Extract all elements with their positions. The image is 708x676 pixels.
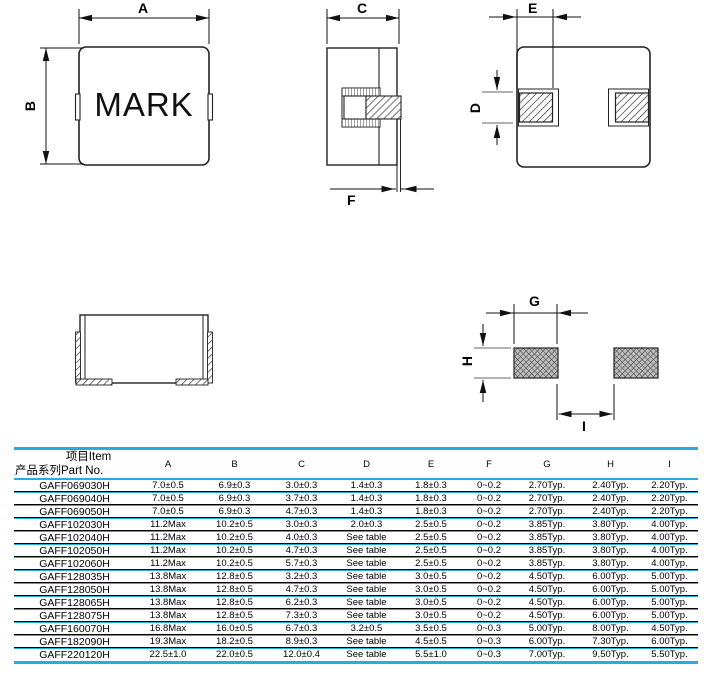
dim-value-cell: 2.5±0.5: [398, 519, 464, 532]
dim-value-cell: 3.85Typ.: [514, 519, 580, 532]
dim-value-cell: 16.0±0.5: [201, 623, 268, 636]
table-row: GAFF069040H7.0±0.56.9±0.33.7±0.31.4±0.31…: [14, 493, 698, 506]
dim-value-cell: 5.50Typ.: [641, 649, 698, 664]
dim-value-cell: 11.2Max: [135, 532, 201, 545]
table-row: GAFF182090H19.3Max18.2±0.58.9±0.3See tab…: [14, 636, 698, 649]
dim-value-cell: 3.0±0.5: [398, 597, 464, 610]
dim-label-c: C: [357, 1, 367, 15]
dim-value-cell: 12.8±0.5: [201, 597, 268, 610]
dim-value-cell: 4.50Typ.: [641, 623, 698, 636]
dim-value-cell: 3.80Typ.: [580, 519, 641, 532]
dim-value-cell: 4.50Typ.: [514, 571, 580, 584]
dim-value-cell: 22.5±1.0: [135, 649, 201, 664]
dim-value-cell: 0~0.2: [464, 571, 514, 584]
dim-value-cell: 4.00Typ.: [641, 519, 698, 532]
dim-value-cell: 2.70Typ.: [514, 506, 580, 519]
column-header-g: G: [514, 450, 580, 480]
dim-value-cell: 6.00Typ.: [641, 636, 698, 649]
part-no-cell: GAFF102050H: [14, 545, 135, 558]
column-header-a: A: [135, 450, 201, 480]
dim-value-cell: 6.00Typ.: [514, 636, 580, 649]
table-row: GAFF069030H7.0±0.56.9±0.33.0±0.31.4±0.31…: [14, 480, 698, 493]
table-row: GAFF102050H11.2Max10.2±0.54.7±0.3See tab…: [14, 545, 698, 558]
part-no-cell: GAFF102040H: [14, 532, 135, 545]
dim-value-cell: See table: [335, 610, 398, 623]
dim-value-cell: 4.50Typ.: [514, 597, 580, 610]
dim-label-f: F: [347, 193, 356, 207]
dim-value-cell: 9.50Typ.: [580, 649, 641, 664]
dim-value-cell: 3.7±0.3: [268, 493, 335, 506]
dim-value-cell: 3.80Typ.: [580, 558, 641, 571]
dim-value-cell: 0~0.3: [464, 636, 514, 649]
dim-value-cell: 2.70Typ.: [514, 493, 580, 506]
dim-value-cell: 2.40Typ.: [580, 506, 641, 519]
dim-value-cell: 0~0.2: [464, 597, 514, 610]
dim-value-cell: 6.9±0.3: [201, 493, 268, 506]
table-row: GAFF128035H13.8Max12.8±0.53.2±0.3See tab…: [14, 571, 698, 584]
dim-value-cell: See table: [335, 597, 398, 610]
dim-value-cell: 2.70Typ.: [514, 480, 580, 493]
dim-value-cell: 0~0.2: [464, 545, 514, 558]
part-no-header: 项目Item 产品系列Part No.: [14, 450, 135, 480]
dim-value-cell: 7.00Typ.: [514, 649, 580, 664]
part-no-cell: GAFF102060H: [14, 558, 135, 571]
dim-value-cell: 4.00Typ.: [641, 545, 698, 558]
land-pattern-drawing: [474, 304, 658, 420]
dim-value-cell: 4.7±0.3: [268, 584, 335, 597]
dim-value-cell: 0~0.2: [464, 584, 514, 597]
dim-value-cell: 16.8Max: [135, 623, 201, 636]
dim-value-cell: 2.40Typ.: [580, 480, 641, 493]
front-view-drawing: [76, 315, 213, 385]
dim-value-cell: 1.4±0.3: [335, 506, 398, 519]
dim-value-cell: See table: [335, 636, 398, 649]
column-header-h: H: [580, 450, 641, 480]
column-header-c: C: [268, 450, 335, 480]
dim-value-cell: 0~0.2: [464, 610, 514, 623]
table-row: GAFF069050H7.0±0.56.9±0.34.7±0.31.4±0.31…: [14, 506, 698, 519]
dim-value-cell: 10.2±0.5: [201, 558, 268, 571]
dim-value-cell: 2.20Typ.: [641, 506, 698, 519]
dim-value-cell: 11.2Max: [135, 545, 201, 558]
dim-label-h: H: [460, 356, 474, 366]
dim-value-cell: See table: [335, 545, 398, 558]
column-header-b: B: [201, 450, 268, 480]
dim-value-cell: 5.00Typ.: [641, 610, 698, 623]
dim-value-cell: 3.0±0.3: [268, 519, 335, 532]
dim-value-cell: 4.7±0.3: [268, 545, 335, 558]
part-no-cell: GAFF069030H: [14, 480, 135, 493]
dim-value-cell: 19.3Max: [135, 636, 201, 649]
dim-value-cell: 0~0.2: [464, 493, 514, 506]
dim-value-cell: 0~0.2: [464, 506, 514, 519]
dim-value-cell: 12.8±0.5: [201, 610, 268, 623]
dim-value-cell: 3.2±0.3: [268, 571, 335, 584]
dim-value-cell: 3.0±0.5: [398, 571, 464, 584]
dim-value-cell: 6.2±0.3: [268, 597, 335, 610]
dim-value-cell: 6.9±0.3: [201, 480, 268, 493]
dim-value-cell: 6.9±0.3: [201, 506, 268, 519]
dim-value-cell: 5.00Typ.: [641, 584, 698, 597]
dim-value-cell: See table: [335, 584, 398, 597]
bottom-view-drawing: [482, 9, 650, 167]
part-no-cell: GAFF069040H: [14, 493, 135, 506]
dim-value-cell: 7.3±0.3: [268, 610, 335, 623]
dim-value-cell: 2.0±0.3: [335, 519, 398, 532]
dim-value-cell: 4.00Typ.: [641, 558, 698, 571]
side-view-drawing: [327, 9, 434, 192]
dim-value-cell: 8.00Typ.: [580, 623, 641, 636]
part-no-cell: GAFF102030H: [14, 519, 135, 532]
dim-value-cell: 5.00Typ.: [641, 571, 698, 584]
dim-label-e: E: [528, 1, 537, 15]
dim-value-cell: 13.8Max: [135, 610, 201, 623]
dim-value-cell: 18.2±0.5: [201, 636, 268, 649]
dim-value-cell: 5.5±1.0: [398, 649, 464, 664]
dim-value-cell: 10.2±0.5: [201, 519, 268, 532]
dim-value-cell: 11.2Max: [135, 558, 201, 571]
dim-value-cell: See table: [335, 532, 398, 545]
item-label: 项目Item: [14, 450, 135, 464]
dim-value-cell: 4.50Typ.: [514, 584, 580, 597]
dim-value-cell: 5.00Typ.: [641, 597, 698, 610]
dim-value-cell: 1.8±0.3: [398, 506, 464, 519]
table-row: GAFF160070H16.8Max16.0±0.56.7±0.33.2±0.5…: [14, 623, 698, 636]
dim-value-cell: 6.00Typ.: [580, 610, 641, 623]
dim-value-cell: 0~0.2: [464, 532, 514, 545]
dim-value-cell: 6.00Typ.: [580, 584, 641, 597]
column-header-i: I: [641, 450, 698, 480]
dim-value-cell: 3.85Typ.: [514, 532, 580, 545]
dim-value-cell: 4.00Typ.: [641, 532, 698, 545]
dim-value-cell: 0~0.2: [464, 480, 514, 493]
dim-value-cell: 11.2Max: [135, 519, 201, 532]
part-no-cell: GAFF160070H: [14, 623, 135, 636]
column-header-d: D: [335, 450, 398, 480]
part-no-cell: GAFF069050H: [14, 506, 135, 519]
dim-value-cell: 8.9±0.3: [268, 636, 335, 649]
dim-value-cell: 12.8±0.5: [201, 571, 268, 584]
dim-label-b: B: [23, 101, 37, 111]
dim-value-cell: 4.7±0.3: [268, 506, 335, 519]
table-row: GAFF102030H11.2Max10.2±0.53.0±0.32.0±0.3…: [14, 519, 698, 532]
table-row: GAFF128075H13.8Max12.8±0.57.3±0.3See tab…: [14, 610, 698, 623]
dim-value-cell: See table: [335, 649, 398, 664]
mark-text: MARK: [79, 86, 209, 124]
dim-value-cell: 3.2±0.5: [335, 623, 398, 636]
dim-value-cell: 6.00Typ.: [580, 571, 641, 584]
dim-value-cell: 0~0.3: [464, 649, 514, 664]
dim-value-cell: 7.30Typ.: [580, 636, 641, 649]
table-row: GAFF102060H11.2Max10.2±0.55.7±0.3See tab…: [14, 558, 698, 571]
dim-value-cell: 4.5±0.5: [398, 636, 464, 649]
dimensions-table: 项目Item 产品系列Part No. ABCDEFGHI GAFF069030…: [14, 447, 698, 664]
dim-value-cell: 7.0±0.5: [135, 506, 201, 519]
dim-value-cell: 6.00Typ.: [580, 597, 641, 610]
dim-value-cell: 2.20Typ.: [641, 480, 698, 493]
dim-value-cell: 1.4±0.3: [335, 493, 398, 506]
dim-value-cell: 7.0±0.5: [135, 480, 201, 493]
table-row: GAFF220120H22.5±1.022.0±0.512.0±0.4See t…: [14, 649, 698, 664]
dim-label-i: I: [582, 419, 586, 433]
dim-value-cell: 3.85Typ.: [514, 545, 580, 558]
part-no-cell: GAFF220120H: [14, 649, 135, 664]
dim-label-g: G: [529, 294, 540, 308]
table-row: GAFF102040H11.2Max10.2±0.54.0±0.3See tab…: [14, 532, 698, 545]
dim-value-cell: 3.80Typ.: [580, 532, 641, 545]
part-no-cell: GAFF128050H: [14, 584, 135, 597]
dim-value-cell: 13.8Max: [135, 584, 201, 597]
part-no-cell: GAFF128035H: [14, 571, 135, 584]
part-no-cell: GAFF128065H: [14, 597, 135, 610]
dim-value-cell: 4.0±0.3: [268, 532, 335, 545]
dim-value-cell: 13.8Max: [135, 571, 201, 584]
dim-value-cell: 10.2±0.5: [201, 532, 268, 545]
table-header-row: 项目Item 产品系列Part No. ABCDEFGHI: [14, 450, 698, 480]
dim-value-cell: 13.8Max: [135, 597, 201, 610]
part-no-cell: GAFF128075H: [14, 610, 135, 623]
dim-value-cell: 2.5±0.5: [398, 532, 464, 545]
dim-value-cell: 2.40Typ.: [580, 493, 641, 506]
dim-value-cell: See table: [335, 558, 398, 571]
column-header-e: E: [398, 450, 464, 480]
dim-value-cell: 10.2±0.5: [201, 545, 268, 558]
dim-value-cell: 2.20Typ.: [641, 493, 698, 506]
dim-value-cell: 22.0±0.5: [201, 649, 268, 664]
dim-value-cell: 0~0.2: [464, 558, 514, 571]
dim-value-cell: 3.85Typ.: [514, 558, 580, 571]
dim-value-cell: 1.8±0.3: [398, 480, 464, 493]
dim-value-cell: 1.8±0.3: [398, 493, 464, 506]
dimension-drawings: [0, 0, 708, 445]
dim-value-cell: See table: [335, 571, 398, 584]
dim-label-a: A: [138, 1, 148, 15]
dim-label-d: D: [468, 103, 482, 113]
table-row: GAFF128065H13.8Max12.8±0.56.2±0.3See tab…: [14, 597, 698, 610]
part-no-cell: GAFF182090H: [14, 636, 135, 649]
dim-value-cell: 7.0±0.5: [135, 493, 201, 506]
column-header-f: F: [464, 450, 514, 480]
dim-value-cell: 3.0±0.5: [398, 584, 464, 597]
dim-value-cell: 3.80Typ.: [580, 545, 641, 558]
part-no-label: 产品系列Part No.: [14, 464, 135, 478]
dim-value-cell: 2.5±0.5: [398, 545, 464, 558]
dim-value-cell: 5.7±0.3: [268, 558, 335, 571]
datasheet-page: MARK A B C F E D G H I 项目Item 产品系列Part N…: [0, 0, 708, 676]
dim-value-cell: 12.8±0.5: [201, 584, 268, 597]
dim-value-cell: 6.7±0.3: [268, 623, 335, 636]
dim-value-cell: 0~0.2: [464, 519, 514, 532]
dim-value-cell: 0~0.3: [464, 623, 514, 636]
dim-value-cell: 5.00Typ.: [514, 623, 580, 636]
table-row: GAFF128050H13.8Max12.8±0.54.7±0.3See tab…: [14, 584, 698, 597]
dim-value-cell: 2.5±0.5: [398, 558, 464, 571]
dim-value-cell: 12.0±0.4: [268, 649, 335, 664]
dim-value-cell: 1.4±0.3: [335, 480, 398, 493]
dim-value-cell: 3.5±0.5: [398, 623, 464, 636]
dim-value-cell: 4.50Typ.: [514, 610, 580, 623]
dim-value-cell: 3.0±0.5: [398, 610, 464, 623]
dim-value-cell: 3.0±0.3: [268, 480, 335, 493]
